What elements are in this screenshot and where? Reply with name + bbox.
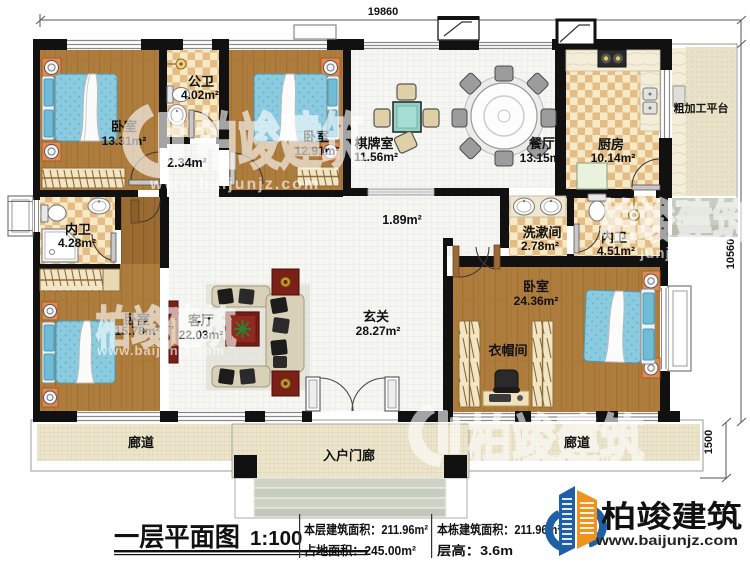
svg-text:柏竣建筑: 柏竣建筑 — [196, 109, 364, 176]
svg-text:内卫: 内卫 — [65, 222, 91, 237]
svg-text:粗加工平台: 粗加工平台 — [674, 101, 729, 115]
svg-text:4.02m²: 4.02m² — [181, 88, 219, 102]
svg-text:28.27m²: 28.27m² — [356, 324, 401, 338]
svg-text:1.89m²: 1.89m² — [382, 213, 422, 227]
svg-text:1:100: 1:100 — [250, 527, 302, 550]
svg-text:www.baijunjz.com: www.baijunjz.com — [96, 343, 225, 358]
svg-text:廊道: 廊道 — [564, 435, 590, 450]
svg-text:24.36m²: 24.36m² — [514, 294, 559, 308]
svg-text:层高：3.6m: 层高：3.6m — [437, 543, 513, 558]
svg-text:廊道: 廊道 — [128, 435, 154, 450]
svg-text:www.baijunjz.com: www.baijunjz.com — [469, 449, 615, 465]
svg-text:www.baijunjz.com: www.baijunjz.com — [149, 176, 320, 193]
svg-text:衣帽间: 衣帽间 — [488, 343, 527, 358]
svg-text:玄关: 玄关 — [363, 309, 389, 324]
svg-text:柏竣建筑: 柏竣建筑 — [600, 196, 750, 248]
svg-text:www.baijunjz.com: www.baijunjz.com — [595, 532, 738, 548]
svg-text:公卫: 公卫 — [188, 74, 214, 89]
svg-text:10.14m²: 10.14m² — [591, 151, 636, 165]
svg-text:19860: 19860 — [368, 6, 399, 18]
svg-text:卧室: 卧室 — [523, 279, 549, 294]
svg-text:2.78m²: 2.78m² — [521, 239, 559, 253]
svg-text:柏竣建筑: 柏竣建筑 — [601, 500, 742, 534]
svg-text:junjz.com: junjz.com — [639, 245, 718, 262]
svg-text:一层平面图: 一层平面图 — [114, 522, 240, 552]
svg-text:入户门廊: 入户门廊 — [323, 448, 375, 463]
svg-text:本栋建筑面积：211.96m²: 本栋建筑面积：211.96m² — [437, 522, 561, 537]
svg-text:1500: 1500 — [703, 430, 715, 454]
svg-text:餐厅: 餐厅 — [528, 136, 555, 151]
svg-text:洗漱间: 洗漱间 — [522, 225, 561, 240]
svg-text:13.15m²: 13.15m² — [520, 151, 565, 165]
svg-text:占地面积：245.00m²: 占地面积：245.00m² — [304, 543, 416, 558]
svg-text:本层建筑面积：211.96m²: 本层建筑面积：211.96m² — [304, 522, 428, 537]
svg-text:厨房: 厨房 — [598, 137, 624, 152]
svg-text:4.28m²: 4.28m² — [58, 236, 96, 250]
